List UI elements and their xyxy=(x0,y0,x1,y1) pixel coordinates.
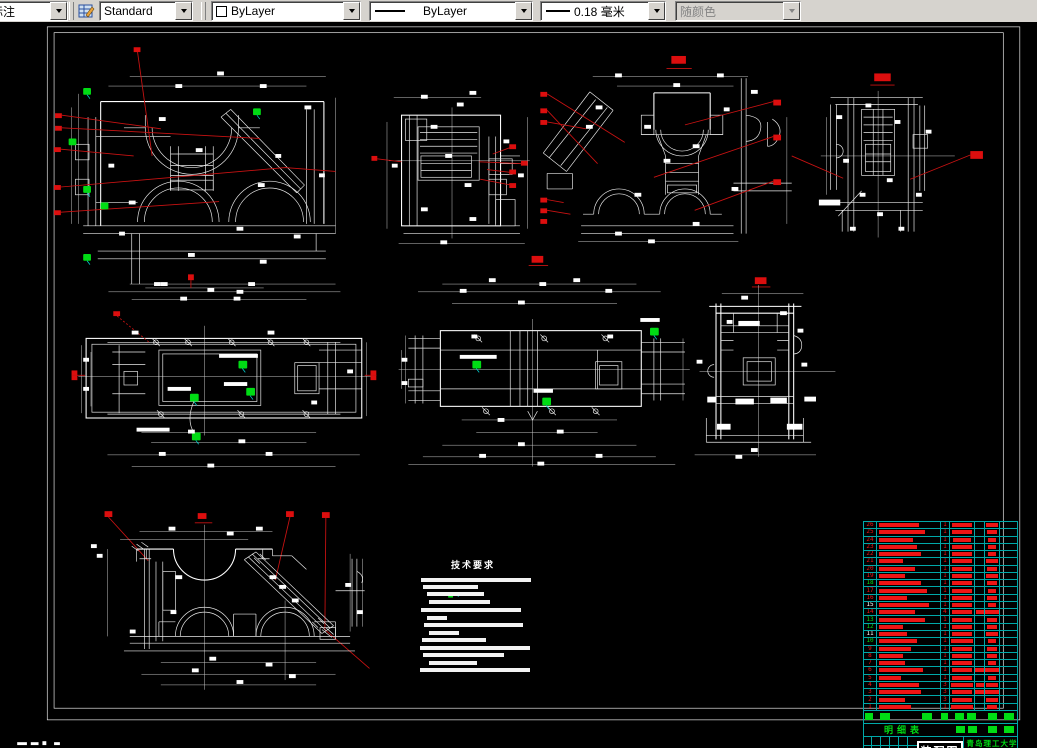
tech-requirements-title: 技术要求 xyxy=(451,558,495,571)
text-style-value: Standard xyxy=(100,4,157,18)
chevron-down-icon[interactable] xyxy=(648,2,665,20)
balloon-leaders xyxy=(540,92,781,224)
surface-finish-symbols xyxy=(69,88,261,265)
chevron-down-icon[interactable] xyxy=(515,2,532,20)
bom-row: 211 xyxy=(864,558,1018,565)
view-rear-section xyxy=(540,56,791,243)
bom-row: 151 xyxy=(864,602,1018,609)
lineweight-sample xyxy=(546,10,570,12)
bom-row: 241 xyxy=(864,537,1018,544)
surface-finish-symbols xyxy=(137,354,258,444)
organization-name: 青岛理工大学 xyxy=(966,738,1018,748)
text-style-combo[interactable]: Standard xyxy=(99,1,193,21)
color-combo[interactable]: ByLayer xyxy=(211,1,361,21)
view-top-plan xyxy=(72,274,377,467)
plotstyle-combo: 随颜色 xyxy=(675,1,801,21)
view-front-section xyxy=(54,47,340,294)
bom-row: 221 xyxy=(864,551,1018,558)
dim-style-combo[interactable]: 标注 xyxy=(0,1,68,21)
bom-row: 71 xyxy=(864,660,1018,667)
dimension-text xyxy=(819,104,932,231)
lineweight-combo[interactable]: 0.18 毫米 xyxy=(540,1,666,21)
bom-row: 101 xyxy=(864,638,1018,645)
view-bottom-plan xyxy=(399,278,690,466)
bolt-symbols xyxy=(474,335,609,416)
linetype-combo[interactable]: ByLayer xyxy=(369,1,533,21)
drawing-name: 装配图 xyxy=(917,741,963,748)
bom-row: 121 xyxy=(864,624,1018,631)
bom-row: 61 xyxy=(864,667,1018,674)
bom-row: 191 xyxy=(864,573,1018,580)
bom-row: 131 xyxy=(864,616,1018,623)
dim-style-value: 标注 xyxy=(0,3,19,20)
styles-toolbar: 标注 Standard ByLayer ByLayer 0.18 毫米 随颜色 xyxy=(0,0,1037,24)
bom-row: 43 xyxy=(864,682,1018,689)
bom-title: 明细表 xyxy=(884,723,923,736)
view-small-section xyxy=(695,277,836,459)
drawing-canvas[interactable]: 2612512412312212112011911811711611511441… xyxy=(0,22,1037,748)
cad-application-window: { "toolbar": { "dim_style_combo": "标注", … xyxy=(0,0,1037,748)
bom-row: 161 xyxy=(864,595,1018,602)
bom-row: 261 xyxy=(864,522,1018,529)
bom-row: 91 xyxy=(864,646,1018,653)
dimension-text xyxy=(586,73,758,243)
bom-row: 144 xyxy=(864,609,1018,616)
toolbar-separator xyxy=(201,2,206,20)
bom-row: 231 xyxy=(864,544,1018,551)
color-swatch xyxy=(216,6,227,17)
chevron-down-icon xyxy=(783,2,800,20)
bom-row: 81 xyxy=(864,653,1018,660)
bom-table: 2612512412312212112011911811711611511441… xyxy=(863,521,1018,710)
dimension-text xyxy=(697,296,816,459)
dimension-text xyxy=(392,91,524,244)
chevron-down-icon[interactable] xyxy=(343,2,360,20)
bom-row: 51 xyxy=(864,675,1018,682)
dimension-text xyxy=(91,527,363,684)
bom-row: 111 xyxy=(864,631,1018,638)
chevron-down-icon[interactable] xyxy=(175,2,192,20)
balloon-leaders xyxy=(792,151,983,179)
bom-row: 251 xyxy=(864,529,1018,536)
dim-style-manager-icon[interactable] xyxy=(75,1,97,21)
clipped-status-text xyxy=(17,741,60,745)
view-lower-section xyxy=(91,511,370,690)
toolbar-separator xyxy=(69,2,74,20)
dimension-text xyxy=(108,72,324,294)
dimension-text xyxy=(402,278,614,465)
bom-row: 171 xyxy=(864,587,1018,594)
plotstyle-value: 随颜色 xyxy=(676,3,720,20)
lineweight-value: 0.18 毫米 xyxy=(570,3,629,20)
surface-finish-symbols xyxy=(460,318,660,420)
bom-row: 181 xyxy=(864,580,1018,587)
bom-row: 23 xyxy=(864,696,1018,703)
view-side-section xyxy=(371,91,529,244)
linetype-value: ByLayer xyxy=(419,4,471,18)
section-label xyxy=(529,256,548,266)
bom-row: 33 xyxy=(864,689,1018,696)
view-end-section xyxy=(792,73,983,237)
bom-row: 201 xyxy=(864,566,1018,573)
color-value: ByLayer xyxy=(227,4,279,18)
chevron-down-icon[interactable] xyxy=(50,2,67,20)
linetype-sample xyxy=(375,10,405,12)
